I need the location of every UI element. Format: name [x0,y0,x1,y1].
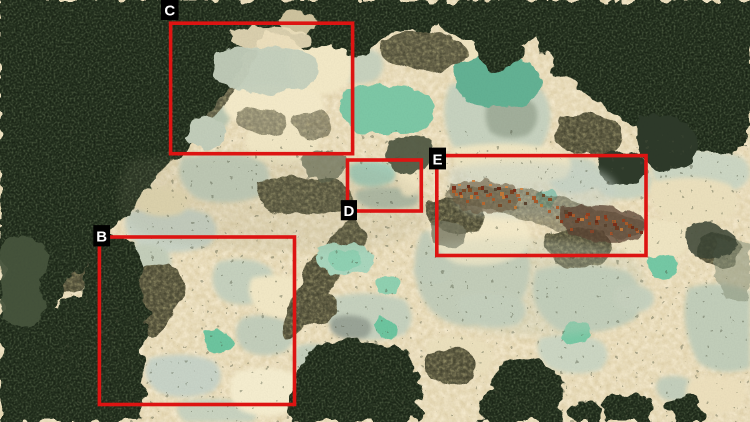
svg-text:D: D [343,203,354,220]
svg-text:C: C [164,3,175,20]
svg-text:B: B [96,229,107,246]
svg-text:E: E [432,152,442,169]
